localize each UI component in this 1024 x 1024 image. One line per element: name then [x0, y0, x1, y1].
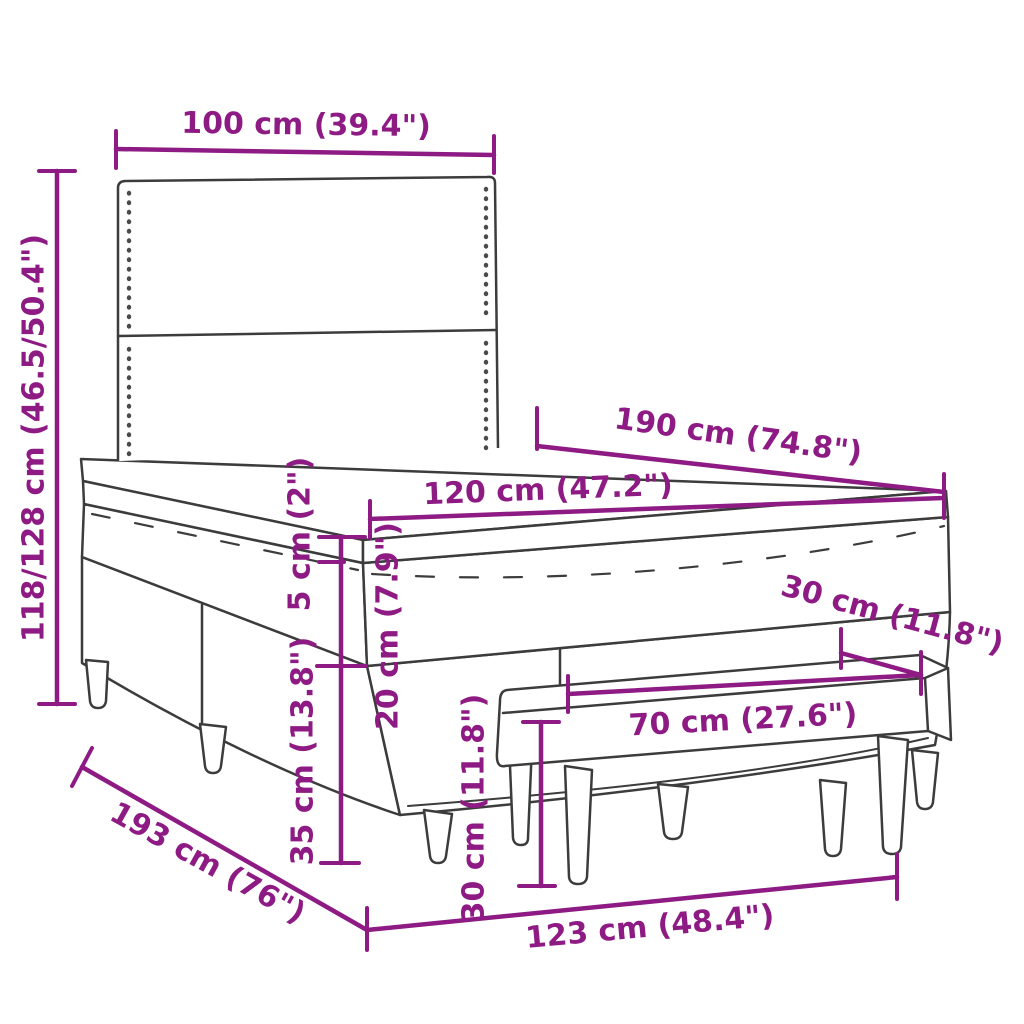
label-topper-height: 5 cm (2") [283, 457, 318, 612]
headboard [117, 177, 498, 461]
bed-leg [912, 750, 938, 809]
label-bench-height: 30 cm (11.8") [457, 694, 492, 923]
bed-dimension-drawing: 100 cm (39.4") 118/128 cm (46.5/50.4") 1… [0, 0, 1024, 1024]
bench-leg [565, 766, 592, 884]
label-box-height: 35 cm (13.8") [286, 637, 321, 866]
bench-leg [878, 736, 908, 854]
bench-leg [820, 780, 846, 856]
bed-leg [200, 724, 226, 773]
bed-leg [86, 660, 108, 708]
headboard-panel-fill [118, 177, 498, 461]
label-headboard-width: 100 cm (39.4") [181, 106, 431, 144]
bed-leg [424, 810, 452, 863]
bed-leg [658, 784, 688, 839]
dimension-diagram: 100 cm (39.4") 118/128 cm (46.5/50.4") 1… [0, 0, 1024, 1024]
label-total-height: 118/128 cm (46.5/50.4") [17, 234, 52, 642]
label-frame-width: 123 cm (48.4") [524, 898, 776, 956]
label-mattress-height: 20 cm (7.9") [371, 522, 406, 730]
label-frame-length: 193 cm (76") [104, 795, 311, 931]
